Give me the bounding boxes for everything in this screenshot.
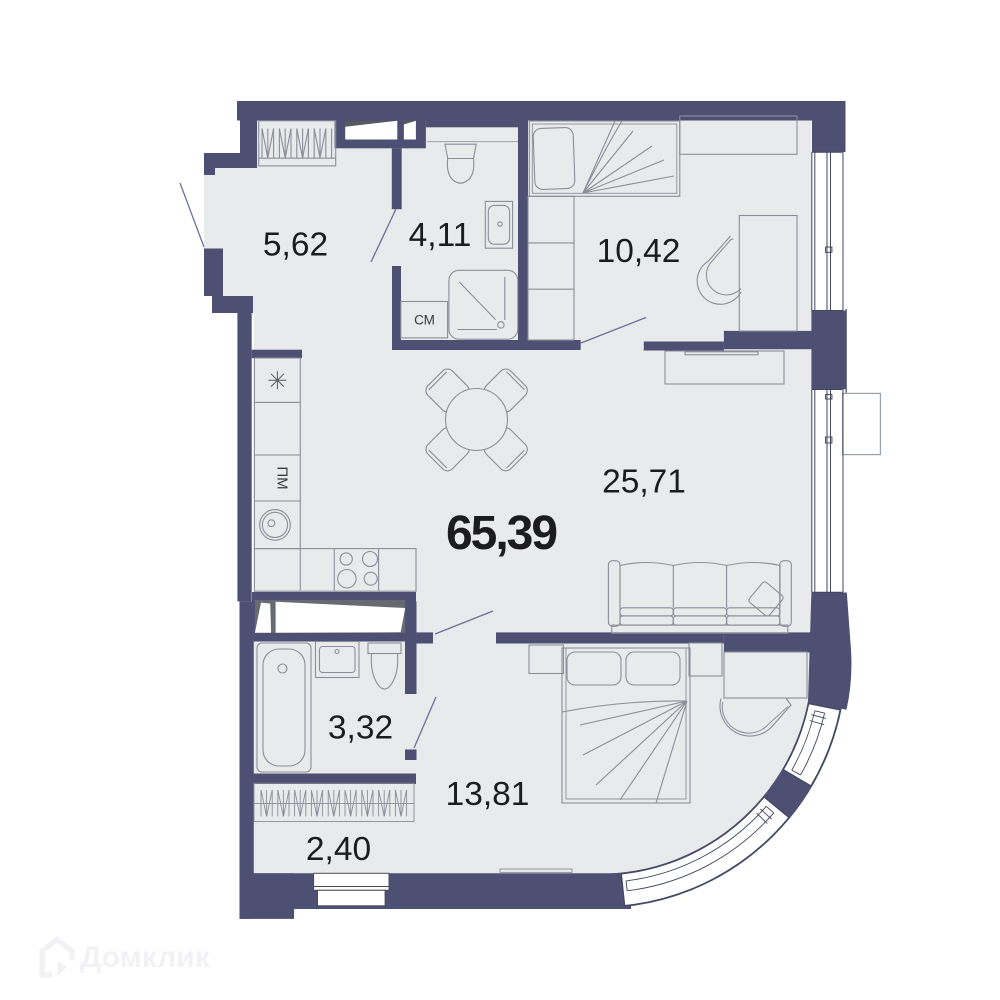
svg-text:10,42: 10,42 <box>597 233 681 270</box>
svg-text:4,11: 4,11 <box>409 217 472 254</box>
svg-text:СМ: СМ <box>414 313 435 328</box>
svg-text:13,81: 13,81 <box>446 776 530 813</box>
svg-text:Домклик: Домклик <box>80 941 211 974</box>
svg-text:5,62: 5,62 <box>263 227 328 264</box>
svg-text:3,32: 3,32 <box>328 710 393 747</box>
svg-text:25,71: 25,71 <box>602 464 686 501</box>
svg-text:65,39: 65,39 <box>446 507 556 560</box>
svg-text:2,40: 2,40 <box>306 831 371 868</box>
svg-text:ПМ: ПМ <box>273 466 290 489</box>
